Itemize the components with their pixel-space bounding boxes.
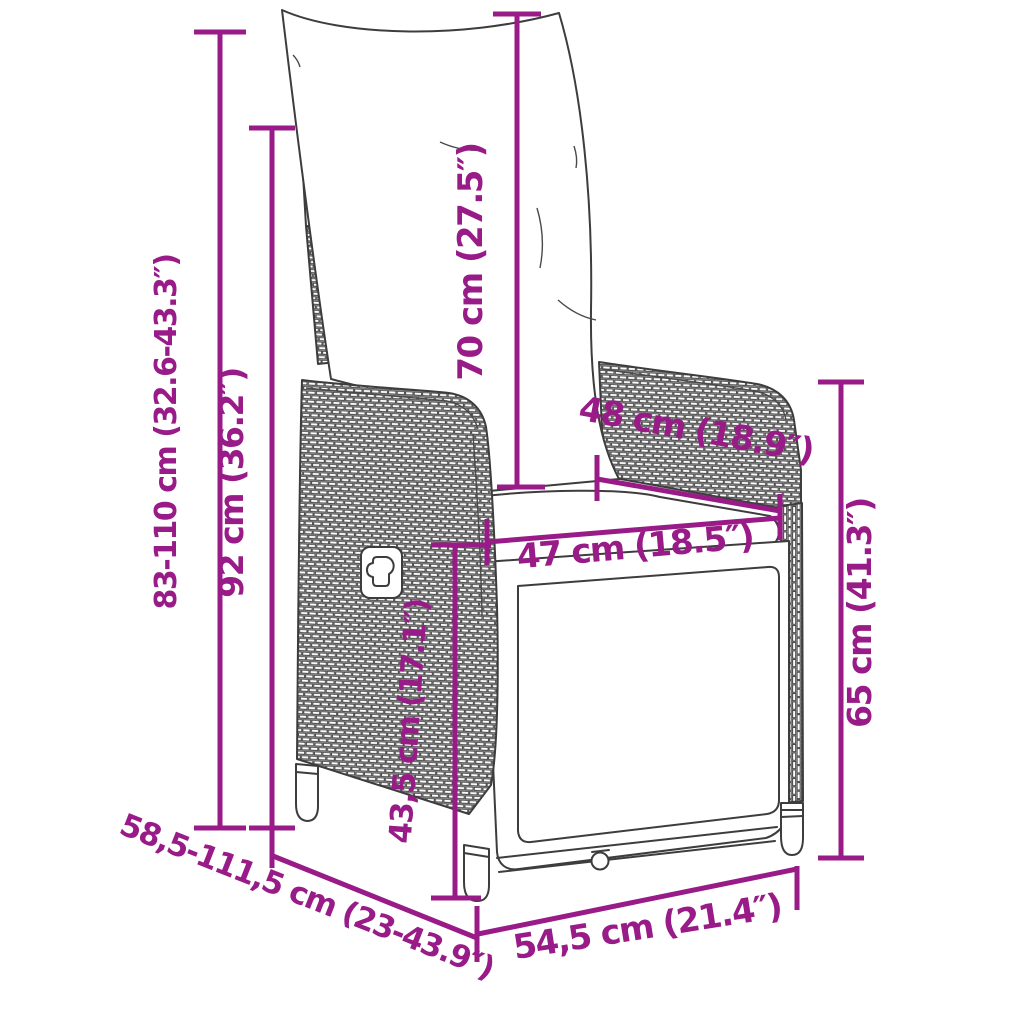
dimension-label-back-height: 92 cm (36.2″) — [212, 368, 251, 598]
dimension-armrest-height: 65 cm (41.3″) — [818, 382, 879, 858]
dimension-label-armrest-height: 65 cm (41.3″) — [840, 498, 879, 728]
dimension-label-back-cushion-height: 70 cm (27.5″) — [451, 143, 491, 380]
dimension-back-height: 92 cm (36.2″) — [212, 128, 295, 868]
dimension-base-width: 54,5 cm (21.4″) — [478, 866, 797, 968]
dimension-diagram-canvas: 83-110 cm (32.6-43.3″) 92 cm (36.2″) 70 … — [0, 0, 1024, 1024]
product-dimension-diagram: 83-110 cm (32.6-43.3″) 92 cm (36.2″) 70 … — [0, 0, 1024, 1024]
footrest-front-panel — [484, 541, 789, 869]
caster-wheel — [592, 853, 609, 870]
dimension-label-total-height: 83-110 cm (32.6-43.3″) — [149, 254, 184, 609]
